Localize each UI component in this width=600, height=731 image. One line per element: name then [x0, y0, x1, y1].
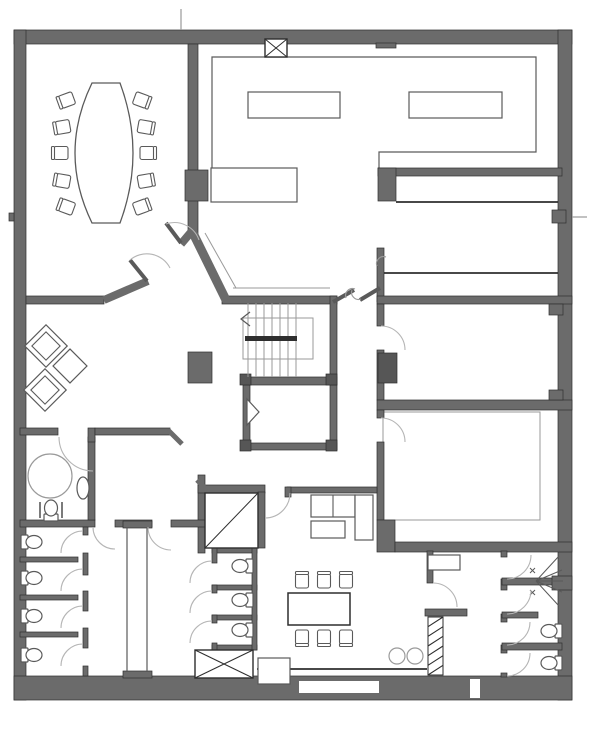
- partition-cap: [123, 671, 152, 678]
- chair-part: [54, 147, 68, 160]
- vent-block: [552, 576, 572, 590]
- toilet-bowl: [232, 560, 248, 573]
- chair-part: [140, 147, 154, 160]
- toilet-bowl: [232, 594, 248, 607]
- chair: [318, 572, 331, 589]
- survey-nub: [9, 213, 14, 221]
- chair: [296, 572, 309, 589]
- wc-left-front-stub: [83, 628, 88, 648]
- niche-wall: [378, 168, 562, 176]
- wc-right-wall-seg: [501, 673, 507, 677]
- door-arc: [61, 644, 83, 666]
- vent-block: [552, 210, 566, 223]
- wc-left-front-stub: [83, 666, 88, 676]
- toilet-icon: [21, 535, 42, 549]
- acc-wc-top-wall: [20, 428, 58, 435]
- wall-pier: [377, 520, 395, 552]
- chair: [137, 119, 156, 135]
- dining-table: [288, 593, 350, 625]
- conference-table: [75, 83, 133, 223]
- door-arc: [433, 583, 457, 607]
- stair-right-wall: [330, 296, 337, 450]
- floor-plan-canvas: [0, 0, 600, 731]
- partition-cap: [123, 521, 152, 528]
- hall-table: [211, 168, 297, 202]
- lounge-south-wall: [95, 428, 170, 435]
- niche-box: [428, 555, 460, 570]
- door-arc: [507, 622, 530, 645]
- toilet-bowl: [26, 610, 42, 623]
- door-arc: [381, 418, 405, 442]
- chair: [340, 630, 353, 647]
- toilet-icon: [232, 559, 253, 573]
- wc-mid-front-stub: [212, 585, 217, 593]
- chair: [340, 572, 353, 589]
- toilet-bowl: [45, 500, 58, 516]
- door-arc: [507, 653, 530, 676]
- toilet-bowl: [232, 624, 248, 637]
- duct-top-wall: [198, 485, 265, 493]
- door-arc: [61, 606, 83, 628]
- wc-mid-divider: [212, 585, 257, 590]
- chair-part: [340, 572, 353, 575]
- wc-left-divider: [20, 557, 78, 562]
- wc-mid-front-stub: [212, 615, 217, 623]
- chair-part: [318, 630, 331, 644]
- wc-right-divider: [502, 612, 538, 618]
- chair-part: [318, 574, 331, 588]
- kitchen-counter-return: [355, 495, 373, 540]
- door-arc: [507, 555, 531, 579]
- wall-pier: [185, 170, 208, 201]
- diagonal-wall: [104, 281, 148, 300]
- chair-part: [296, 572, 309, 575]
- toilet-icon: [44, 500, 58, 521]
- acc-wc-top-pier: [88, 428, 95, 442]
- chair: [53, 119, 72, 135]
- wall-joint: [376, 43, 396, 48]
- east-wing-wall-1: [377, 296, 572, 304]
- door-arc: [61, 569, 83, 591]
- chair-part: [340, 574, 353, 588]
- chair: [132, 91, 152, 109]
- chair: [56, 198, 76, 216]
- door-leaf: [166, 223, 181, 243]
- round-basin: [28, 454, 72, 498]
- elevator-post: [240, 440, 251, 451]
- floor-plan-svg: [0, 0, 600, 731]
- stair-top-wall: [222, 296, 337, 304]
- wc-left-divider: [20, 632, 78, 637]
- chair-part: [318, 572, 331, 575]
- toilet-bowl: [26, 649, 42, 662]
- kitchen-north-wall: [287, 487, 377, 493]
- door-arc: [93, 527, 115, 549]
- chair: [53, 173, 72, 189]
- outer-wall-top: [14, 30, 572, 44]
- chair-part: [318, 644, 331, 647]
- chair-part: [52, 147, 55, 160]
- stair-handrail: [245, 336, 297, 341]
- wall-pier: [549, 304, 563, 315]
- door-arc: [61, 531, 83, 553]
- threshold-box: [258, 658, 290, 684]
- stair-elevator-divider: [243, 377, 337, 385]
- elevator-symbol: [247, 399, 259, 425]
- wc-mid-bottom-wall: [212, 645, 257, 650]
- door-arc: [190, 621, 212, 643]
- east-corridor-wall: [377, 410, 384, 418]
- chair-part: [296, 630, 309, 644]
- lounge-armchair: [24, 369, 66, 411]
- office-south-wall: [395, 542, 572, 552]
- conference-south-wall: [26, 296, 104, 304]
- chair: [52, 147, 69, 160]
- diagonal-wall: [181, 231, 192, 244]
- sink: [77, 477, 89, 499]
- door-arc: [190, 561, 212, 583]
- lobby-pier: [188, 352, 212, 383]
- wc-mid-divider: [212, 615, 257, 620]
- wall-opening: [299, 681, 379, 693]
- kitchen-island: [311, 521, 345, 538]
- door-leaf: [130, 260, 147, 281]
- toilet-bowl: [26, 572, 42, 585]
- wc-right-divider: [502, 643, 562, 650]
- outer-wall-bottom: [14, 676, 572, 700]
- wc-left-front-stub: [83, 527, 88, 535]
- entry-corridor-wall: [425, 609, 467, 616]
- door-arc: [507, 590, 531, 614]
- toilet-icon: [21, 609, 42, 623]
- duct-right-wall: [258, 492, 265, 548]
- wc-mid-front-stub: [212, 548, 217, 563]
- toilet-icon: [541, 624, 562, 638]
- chair-part: [154, 147, 157, 160]
- stool: [407, 648, 423, 664]
- hall-table: [248, 92, 340, 118]
- shower-mark: [530, 568, 535, 573]
- chair: [132, 198, 152, 216]
- conference-wall: [188, 44, 198, 234]
- chair: [318, 630, 331, 647]
- wc-left-front-stub: [83, 553, 88, 575]
- wc-mid-top-wall: [212, 548, 257, 553]
- east-wing-wall-2: [377, 400, 572, 410]
- elevator-post: [326, 440, 337, 451]
- chair-part: [340, 644, 353, 647]
- acc-wc-right-wall: [88, 437, 95, 520]
- wc-left-divider: [20, 595, 78, 600]
- toilet-bowl: [541, 657, 557, 670]
- chair: [140, 147, 157, 160]
- wc-left-front-stub: [83, 591, 88, 611]
- chair-part: [340, 630, 353, 644]
- toilet-bowl: [541, 625, 557, 638]
- stool: [389, 648, 405, 664]
- east-corridor-wall: [377, 442, 384, 520]
- chair-part: [296, 644, 309, 647]
- chair: [137, 173, 156, 189]
- elevator-post: [240, 374, 251, 385]
- hall-table: [409, 92, 502, 118]
- door-arc: [190, 591, 212, 613]
- wc-mid-front-stub: [212, 643, 217, 650]
- toilet-icon: [21, 648, 42, 662]
- toilet-icon: [232, 593, 253, 607]
- outer-wall-right: [558, 30, 572, 700]
- door-arc: [381, 326, 405, 350]
- door-frame-tick: [168, 430, 182, 444]
- east-corridor-wall: [377, 304, 384, 326]
- stair-direction-arrow: [241, 312, 250, 326]
- elevator-bottom-wall: [243, 443, 337, 450]
- toilet-icon: [21, 571, 42, 585]
- toilet-icon: [541, 656, 562, 670]
- toilet-bowl: [26, 536, 42, 549]
- chair: [56, 91, 76, 109]
- office-floor-rect: [383, 412, 540, 520]
- wall-pier: [549, 390, 563, 400]
- wc-right-wall-seg: [501, 551, 507, 557]
- niche-pier: [378, 168, 396, 201]
- elevator-post: [326, 374, 337, 385]
- wall-opening: [470, 679, 480, 698]
- chair-part: [296, 574, 309, 588]
- chair: [296, 630, 309, 647]
- toilet-icon: [232, 623, 253, 637]
- duct-pier: [378, 353, 397, 383]
- door-arc: [148, 527, 171, 550]
- diagonal-wall: [192, 231, 226, 300]
